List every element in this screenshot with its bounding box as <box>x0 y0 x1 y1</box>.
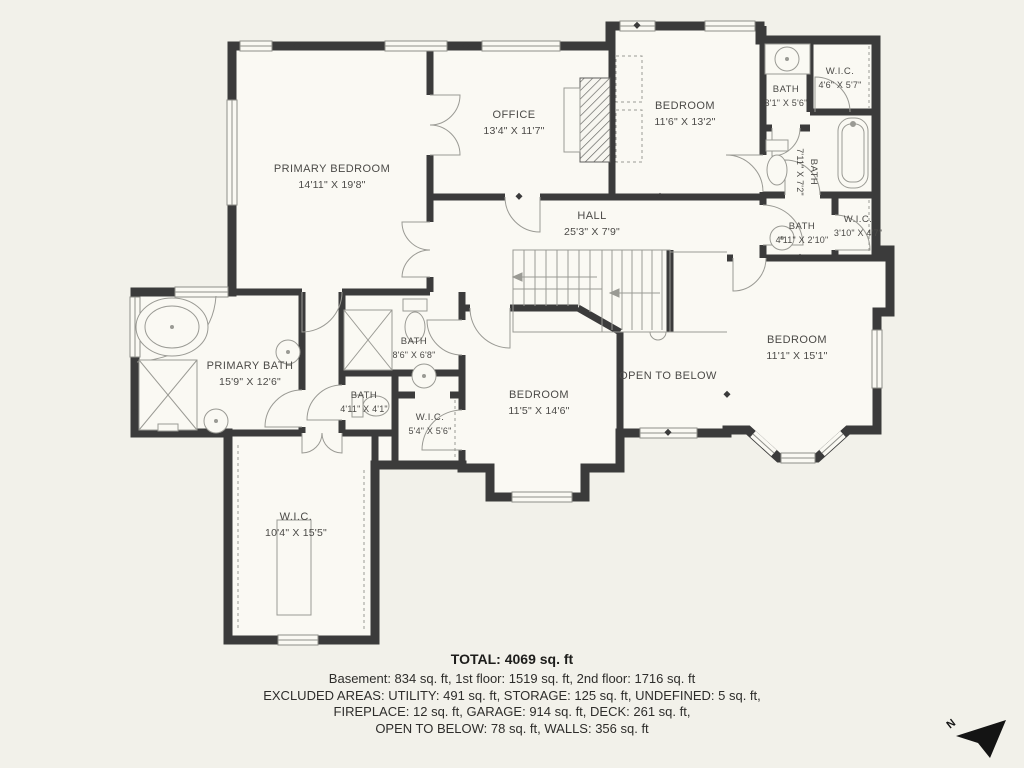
room-label-wic-large: W.I.C. 10'4" X 15'5" <box>265 509 327 541</box>
room-label-bath-411: BATH 4'11" X 4'1" <box>340 389 388 417</box>
room-label-bath-top: BATH 3'1" X 5'6" <box>764 83 807 111</box>
sink-icon <box>412 364 436 388</box>
room-label-open-to-below: OPEN TO BELOW <box>619 368 717 385</box>
sink-icon <box>204 409 228 433</box>
bathtub-icon <box>838 118 868 188</box>
room-label-primary-bedroom: PRIMARY BEDROOM 14'11" X 19'8" <box>274 161 390 193</box>
shower-icon <box>139 360 197 431</box>
summary-line: FIREPLACE: 12 sq. ft, GARAGE: 914 sq. ft… <box>0 704 1024 721</box>
room-label-primary-bath: PRIMARY BATH 15'9" X 12'6" <box>207 358 294 390</box>
shower-icon <box>344 310 392 370</box>
fireplace-icon <box>564 78 610 162</box>
room-label-wic-small: W.I.C. 3'10" X 4'7" <box>834 213 882 241</box>
room-label-bath-small: BATH 4'11" X 2'10" <box>776 220 829 248</box>
room-label-bedroom-top: BEDROOM 11'6" X 13'2" <box>654 98 715 130</box>
summary-line: Basement: 834 sq. ft, 1st floor: 1519 sq… <box>0 671 1024 688</box>
toilet-icon <box>766 140 788 185</box>
room-label-bedroom-right: BEDROOM 11'1" X 15'1" <box>766 332 827 364</box>
summary-line: OPEN TO BELOW: 78 sq. ft, WALLS: 356 sq.… <box>0 721 1024 738</box>
room-label-hall: HALL 25'3" X 7'9" <box>564 208 620 240</box>
summary-total: TOTAL: 4069 sq. ft <box>0 651 1024 669</box>
room-label-office: OFFICE 13'4" X 11'7" <box>483 107 544 139</box>
summary-line: EXCLUDED AREAS: UTILITY: 491 sq. ft, STO… <box>0 688 1024 705</box>
room-label-bath-mid-right: BATH 7'11" X 7'2" <box>792 148 820 196</box>
sink-icon <box>765 44 810 74</box>
room-label-wic-top: W.I.C. 4'6" X 5'7" <box>818 65 861 93</box>
area-summary: TOTAL: 4069 sq. ft Basement: 834 sq. ft,… <box>0 651 1024 737</box>
room-label-bedroom-mid: BEDROOM 11'5" X 14'6" <box>508 387 569 419</box>
room-label-bath-86: BATH 8'6" X 6'8" <box>392 335 435 363</box>
room-label-wic-54: W.I.C. 5'4" X 5'6" <box>408 411 451 439</box>
floor-plan-page: N PRIMARY BEDROOM 14'11" X 19'8" OFFICE … <box>0 0 1024 768</box>
